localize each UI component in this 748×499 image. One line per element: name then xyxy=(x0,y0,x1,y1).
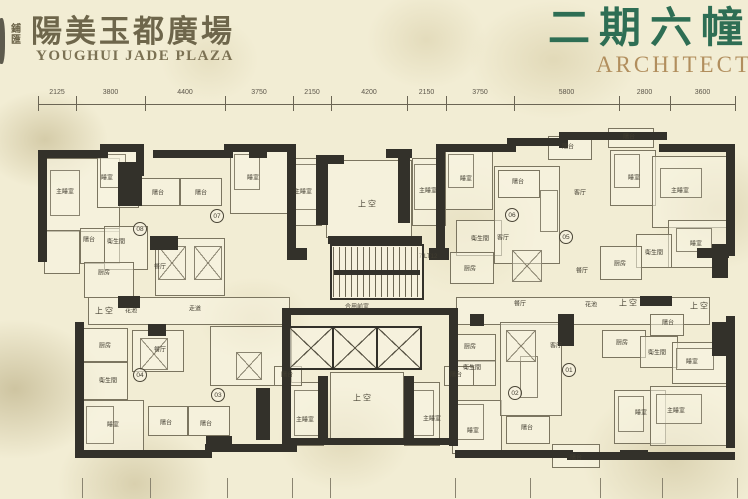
furniture-bed xyxy=(294,390,320,436)
dimension-tick xyxy=(514,96,515,111)
furniture-table xyxy=(236,352,262,380)
void-label: 上空 xyxy=(690,301,710,312)
furniture-bed xyxy=(540,190,558,232)
room-label: 主睡室 xyxy=(671,186,689,195)
room-label: 睡室 xyxy=(690,239,702,248)
room-label: 陽台 xyxy=(160,418,172,427)
brochure-page: 鋪 匯 陽美玉都廣場 YOUGHUI JADE PLAZA 二期六幢 ARCHI… xyxy=(0,0,748,499)
room-label: 睡室 xyxy=(107,420,119,429)
void-label: 上空 xyxy=(353,393,373,404)
elevator-bank xyxy=(288,326,422,370)
room-label: 餐厅 xyxy=(576,266,588,275)
room-label: 睡室 xyxy=(101,173,113,182)
elevator-shaft xyxy=(334,328,378,368)
wall-segment xyxy=(559,132,667,140)
dimension-tick xyxy=(293,96,294,111)
room-label: 陽台 xyxy=(662,318,674,327)
dimension-value: 2125 xyxy=(49,89,65,96)
room-label: 衛生間 xyxy=(648,348,666,357)
wall-segment xyxy=(153,150,233,158)
room-outline xyxy=(44,230,80,274)
room-label: 陽台 xyxy=(450,370,462,379)
room-label: 衛生間 xyxy=(99,376,117,385)
dimension-value: 5800 xyxy=(559,89,575,96)
unit-number-badge: 08 xyxy=(133,222,147,236)
elevator-shaft xyxy=(290,328,334,368)
room-label: 主睡室 xyxy=(56,187,74,196)
room-label: 餐厅 xyxy=(154,345,166,354)
bottom-dimension-tick xyxy=(227,478,228,498)
dimension-tick xyxy=(446,96,447,111)
room-label: 陽台 xyxy=(281,370,293,379)
room-label: 厨房 xyxy=(616,338,628,347)
page-edge-shadow xyxy=(0,18,5,64)
room-label: 睡室 xyxy=(247,173,259,182)
bottom-dimension-tick xyxy=(600,478,601,498)
room-label: 陽台 xyxy=(623,132,635,141)
room-label: 走道 xyxy=(189,304,201,313)
wall-segment xyxy=(282,308,458,315)
room-label: 陽台 xyxy=(512,177,524,186)
room-label: 衛生間 xyxy=(463,363,481,372)
bottom-dimension-tick xyxy=(150,478,151,498)
unit-number-badge: 03 xyxy=(211,388,225,402)
dimension-value: 3750 xyxy=(251,89,267,96)
room-label: 主睡室 xyxy=(296,415,314,424)
wall-segment xyxy=(697,248,729,258)
furniture-bed xyxy=(456,404,484,440)
dimension-tick xyxy=(735,96,736,111)
wall-segment xyxy=(507,138,567,146)
room-label: 客厅 xyxy=(497,233,509,242)
room-label: 陽台 xyxy=(152,188,164,197)
wall-segment xyxy=(282,438,458,445)
dimension-tick xyxy=(619,96,620,111)
bottom-dimension-tick xyxy=(530,478,531,498)
furniture-table xyxy=(512,250,542,282)
wall-segment xyxy=(318,376,328,438)
dimension-tick xyxy=(225,96,226,111)
wall-segment xyxy=(386,149,412,158)
bottom-dimension-tick xyxy=(82,478,83,498)
dimension-value: 4200 xyxy=(361,89,377,96)
architect-caption: ARCHITECT xyxy=(596,52,748,78)
room-label: 睡室 xyxy=(628,173,640,182)
dimension-tick xyxy=(38,96,39,111)
room-label: 睡室 xyxy=(686,357,698,366)
unit-number-badge: 05 xyxy=(559,230,573,244)
brand-logo: 鋪 匯 xyxy=(8,24,24,46)
room-label: 合用前室 xyxy=(345,302,369,311)
unit-number-badge: 06 xyxy=(505,208,519,222)
dimension-value: 2150 xyxy=(419,89,435,96)
unit-number-badge: 07 xyxy=(210,209,224,223)
room-label: 陽台 xyxy=(521,423,533,432)
brand-char-top: 鋪 xyxy=(8,24,24,35)
furniture-bed xyxy=(520,356,538,398)
room-label: 主睡室 xyxy=(667,406,685,415)
dimension-tick xyxy=(407,96,408,111)
bottom-dimension-tick xyxy=(455,478,456,498)
void-label: 上空 xyxy=(95,306,115,317)
dimension-value: 4400 xyxy=(177,89,193,96)
dimension-tick xyxy=(670,96,671,111)
room-label: 衛生間 xyxy=(471,234,489,243)
wall-segment xyxy=(455,450,573,458)
room-label: 陽台 xyxy=(562,142,574,151)
room-label: 厨房 xyxy=(464,264,476,273)
room-label: 睡室 xyxy=(635,408,647,417)
staircase xyxy=(330,244,424,300)
bottom-dimension-tick xyxy=(330,478,331,498)
page-subtitle: YOUGHUI JADE PLAZA xyxy=(36,48,234,65)
room-label: 客厅 xyxy=(574,188,586,197)
wall-segment xyxy=(148,324,166,336)
wall-segment xyxy=(436,144,445,256)
room-label: 客厅 xyxy=(550,341,562,350)
furniture-bed xyxy=(448,154,474,188)
wall-segment xyxy=(287,144,296,256)
bottom-dimension-tick xyxy=(662,478,663,498)
dimension-line xyxy=(38,104,735,105)
unit-number-badge: 02 xyxy=(508,386,522,400)
furniture-table xyxy=(506,330,536,362)
room-label: 睡室 xyxy=(467,426,479,435)
wall-segment xyxy=(206,436,232,448)
room-label: 衛生間 xyxy=(107,237,125,246)
furniture-table xyxy=(140,338,168,370)
dimension-value: 2800 xyxy=(637,89,653,96)
wall-segment xyxy=(75,450,212,458)
elevator-shaft xyxy=(378,328,420,368)
room-label: 衛生間 xyxy=(645,248,663,257)
wall-segment xyxy=(287,248,307,260)
dimension-tick xyxy=(145,96,146,111)
wall-segment xyxy=(150,236,178,250)
dimension-tick xyxy=(331,96,332,111)
room-label: 餐厅 xyxy=(514,299,526,308)
furniture-bed xyxy=(614,154,640,188)
room-label: 厨房 xyxy=(464,342,476,351)
dimension-value: 3750 xyxy=(472,89,488,96)
wall-segment xyxy=(398,149,410,223)
room-label: 花池 xyxy=(125,306,137,315)
phase-title: 二期六幢 xyxy=(548,0,748,55)
wall-segment xyxy=(620,450,648,460)
room-label: 陽台 xyxy=(200,419,212,428)
wall-segment xyxy=(316,155,328,225)
room-label: 陽台 xyxy=(83,235,95,244)
room-label: 厨房 xyxy=(99,341,111,350)
unit-number-badge: 01 xyxy=(562,363,576,377)
room-label: 主睡室 xyxy=(294,187,312,196)
room-label: 花池 xyxy=(585,300,597,309)
wall-segment xyxy=(316,155,344,164)
wall-segment xyxy=(640,296,672,306)
dimension-value: 3600 xyxy=(695,89,711,96)
wall-segment xyxy=(38,150,108,158)
room-outline xyxy=(330,372,404,444)
room-label: 陽台 xyxy=(570,453,582,462)
furniture-table xyxy=(194,246,222,280)
dimension-value: 2150 xyxy=(304,89,320,96)
wall-segment xyxy=(470,314,484,326)
room-label: 主睡室 xyxy=(423,414,441,423)
room-label: 餐厅 xyxy=(154,262,166,271)
dimension-tick xyxy=(76,96,77,111)
wall-segment xyxy=(118,162,142,206)
page-title: 陽美玉都廣場 xyxy=(31,6,235,51)
wall-segment xyxy=(249,144,267,158)
room-label: 睡室 xyxy=(460,174,472,183)
dimension-value: 3800 xyxy=(103,89,119,96)
wall-segment xyxy=(38,150,47,262)
bottom-dimension-tick xyxy=(737,478,738,498)
void-label: 上空 xyxy=(358,199,378,210)
wall-segment xyxy=(404,376,414,438)
stair-landing xyxy=(334,270,420,275)
wall-segment xyxy=(567,452,735,460)
wall-segment xyxy=(328,236,422,244)
wall-segment xyxy=(726,144,735,256)
wall-segment xyxy=(75,322,84,454)
room-label: 厨房 xyxy=(98,268,110,277)
wall-segment xyxy=(712,322,728,356)
void-label: 上空 xyxy=(619,298,639,309)
room-label: 厨房 xyxy=(614,259,626,268)
brand-char-bottom: 匯 xyxy=(8,35,24,46)
room-label: 陽台 xyxy=(195,188,207,197)
unit-number-badge: 04 xyxy=(133,368,147,382)
bottom-dimension-tick xyxy=(292,478,293,498)
room-label: 主睡室 xyxy=(419,186,437,195)
wall-segment xyxy=(659,144,729,152)
wall-segment xyxy=(256,388,270,440)
wall-segment xyxy=(444,144,516,152)
